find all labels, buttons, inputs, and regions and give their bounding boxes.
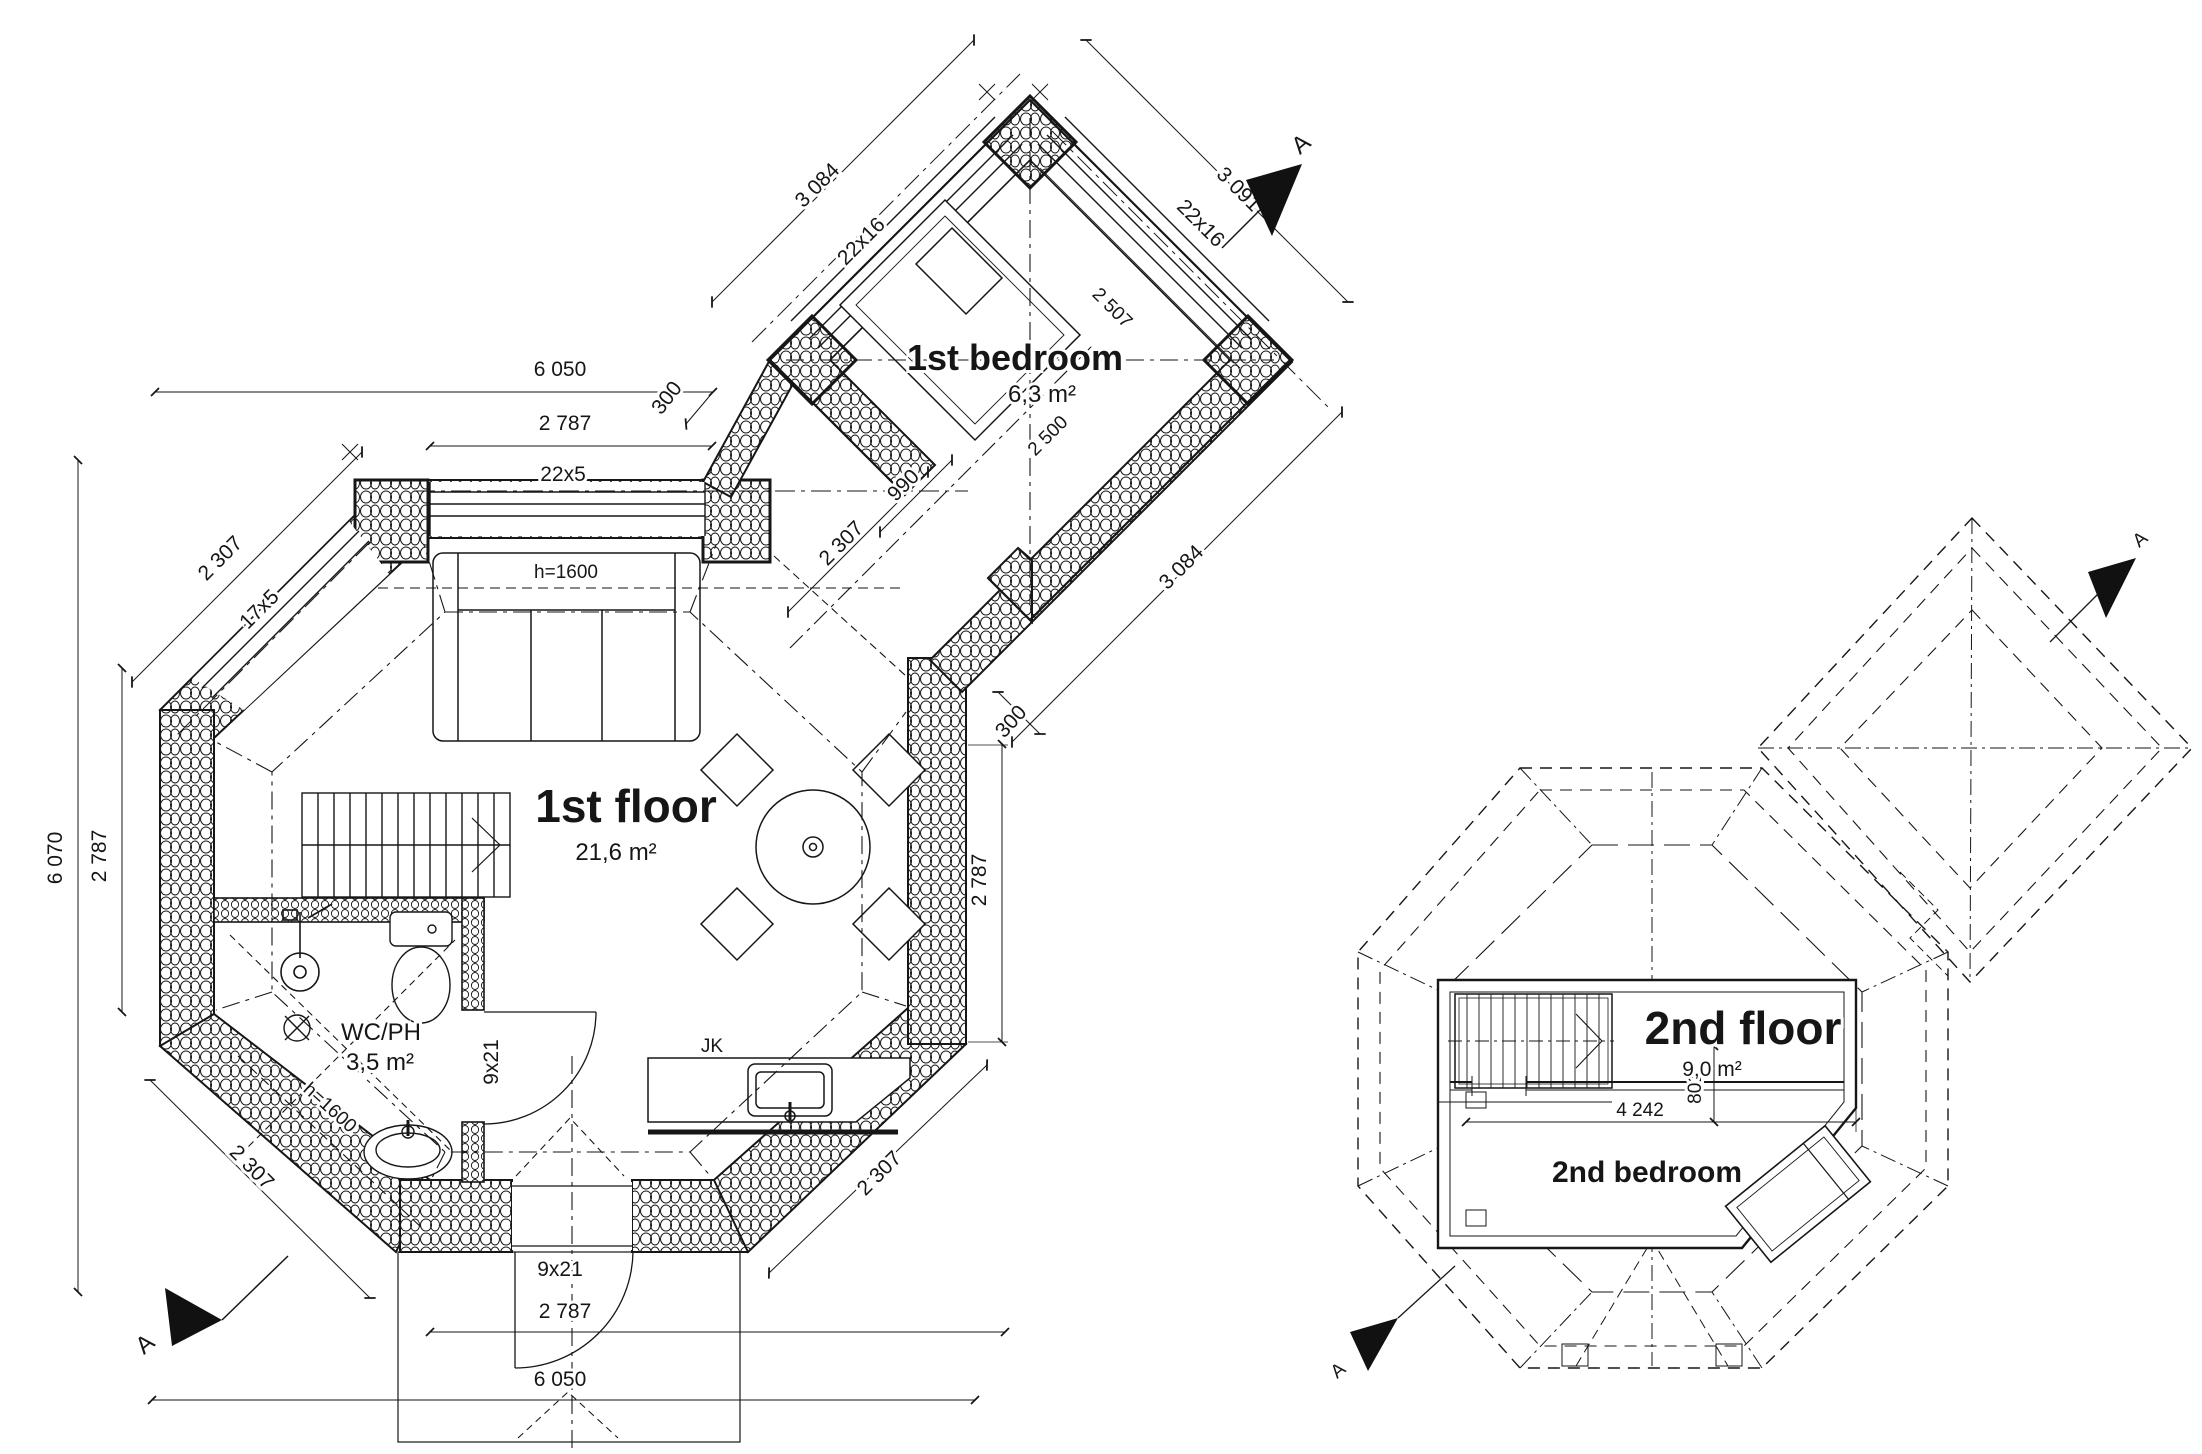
first-floor-plan: 6 050 300 2 787 22x5 2 307 17x5 6 070 2 … [44,40,1348,1448]
section-label-top: A [1286,129,1316,160]
kitchen-label: JK [701,1036,724,1057]
staircase [302,793,510,897]
section-label-top-second: A [2129,527,2152,551]
dim-wc-door: 9x21 [480,1039,503,1085]
sofa-height-label: h=1600 [534,562,598,583]
wc-label: WC/PH [341,1019,421,1046]
dining-table [701,734,925,960]
dim-bedroom-se-len: 3 084 [1155,540,1209,594]
wc-sink [364,1120,452,1179]
dim-bedroom-ne-window: 22x16 [1172,195,1229,252]
dim-corridor-diag: 2 307 [815,517,868,570]
dim-entry-door: 9x21 [537,1258,583,1281]
dim-bedroom-inner-se: 2 500 [1024,412,1072,460]
dim-top-offset: 300 [647,377,687,419]
dim-lower-left-diag: 2 307 [225,1141,278,1194]
section-marker-bottom-second: A [1327,1266,1455,1383]
first-floor-area: 21,6 m² [575,839,656,866]
dim-right-inner: 2 787 [968,854,991,907]
fan-icon [284,1015,310,1041]
dim-bedroom-nw-window: 22x16 [833,213,890,270]
wc-area: 3,5 m² [346,1049,414,1076]
floor-plan-sheet: 6 050 300 2 787 22x5 2 307 17x5 6 070 2 … [0,0,2202,1454]
second-floor-area: 9,0 m² [1682,1058,1742,1081]
dim-room-width: 4 242 [1616,1100,1664,1121]
second-floor-plan: 4 242 801 2nd floor 9,0 m² 2nd bedroom A… [1327,518,2192,1383]
dim-left-inner: 2 787 [88,830,111,883]
section-arrow-icon [2088,558,2136,618]
section-arrow-icon [165,1288,222,1346]
first-bedroom-area: 6,3 m² [1008,381,1076,408]
dim-bottom-total: 6 050 [534,1368,587,1391]
dim-upper-left-diag: 2 307 [194,532,247,585]
section-marker-bottom: A [130,1256,288,1360]
dim-top-inner: 2 787 [539,412,592,435]
dim-top-window: 22x5 [540,463,586,486]
window-strips [192,117,1269,710]
dim-corridor-offset: 300 [991,701,1032,742]
first-bedroom-title: 1st bedroom [907,337,1123,378]
dim-left-total: 6 070 [44,832,67,885]
second-bedroom-title: 2nd bedroom [1552,1156,1742,1189]
floor-plan-drawing: 6 050 300 2 787 22x5 2 307 17x5 6 070 2 … [0,0,2202,1454]
first-floor-title: 1st floor [535,780,717,832]
section-marker-top-second: A [2050,527,2152,642]
toilet [390,912,452,1023]
dim-lower-right-diag: 2 307 [853,1147,906,1200]
section-arrow-icon [1350,1318,1398,1371]
dim-bedroom-inner-ne: 2 507 [1088,284,1136,332]
section-label-bottom-second: A [1327,1358,1350,1382]
dim-top-total: 6 050 [534,358,587,381]
section-label-bottom: A [130,1329,160,1360]
second-floor-title: 2nd floor [1645,1002,1842,1054]
dim-bottom-inner: 2 787 [539,1300,592,1323]
dim-bedroom-nw-len: 3 084 [791,158,845,212]
